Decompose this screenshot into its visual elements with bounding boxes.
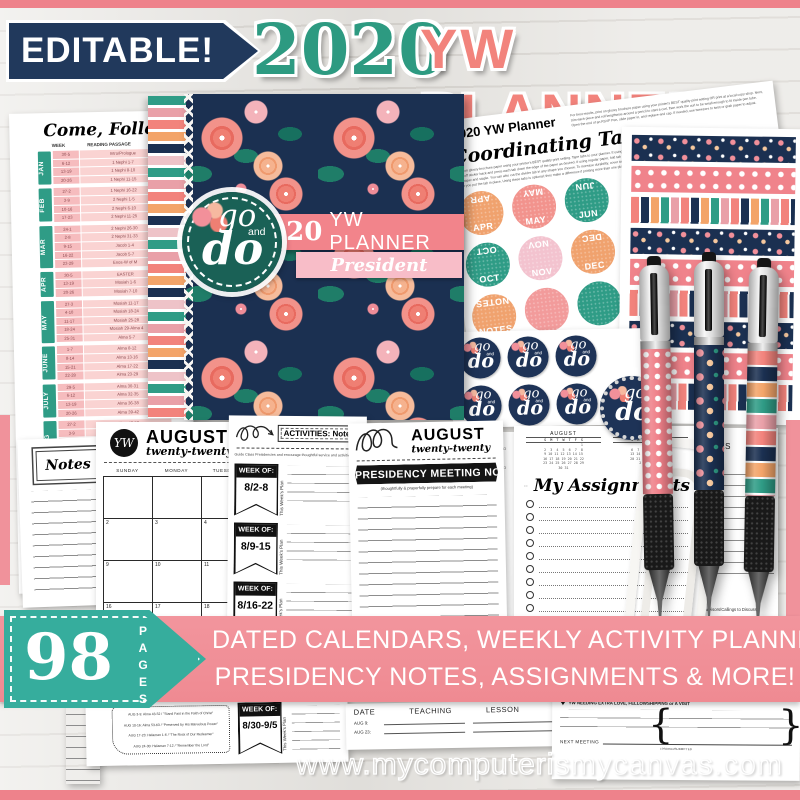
activities-header: ACTIVITIES: Notes: [235, 421, 361, 444]
teaching-row-date: AUG 9:: [354, 720, 376, 725]
teaching-header: TEACHING: [409, 706, 452, 716]
reading-week: 9-15: [55, 242, 81, 250]
presidency-notes-page: AUGUST twenty-twenty PRESIDENCY MEETING …: [348, 420, 507, 623]
cover-title: YW PLANNER: [329, 209, 464, 255]
calendar-cell: 2: [104, 519, 153, 561]
cover-subtitle-ribbon: President: [296, 252, 462, 278]
calendar-year-script: twenty-twenty: [146, 445, 233, 458]
week-flag-shape: WEEK OF: 8/30-9/5: [238, 702, 283, 755]
pen-tip: [644, 570, 675, 623]
right-brace: }: [778, 703, 800, 749]
go-and-do-sticker: goanddo: [508, 384, 550, 426]
presidency-banner: PRESIDENCY MEETING NOTES: [355, 463, 498, 485]
week-of-label: WEEK OF:: [235, 583, 276, 595]
go-and-do-lockup: goanddo: [459, 337, 501, 379]
sticker-do: do: [468, 349, 495, 373]
month-tab-circle: DECDEC: [568, 227, 617, 276]
dashed-divider: [357, 458, 496, 462]
pen-grip: [643, 494, 674, 571]
calendar-cell: 9: [104, 561, 153, 603]
month-tab-label: DEC: [584, 259, 606, 271]
reading-week: 30-5: [55, 271, 81, 279]
reading-week: 25-31: [57, 334, 83, 342]
month-tab-label: MAY: [41, 301, 55, 343]
teaching-header: LESSON: [486, 705, 520, 715]
banner-line-1: DATED CALENDARS, WEEKLY ACTIVITY PLANNER…: [212, 622, 798, 659]
teaching-table-headers: DATETEACHINGLESSON: [354, 704, 553, 716]
month-tab-label-mirrored: DEC: [581, 231, 603, 243]
editable-label: EDITABLE!: [9, 31, 214, 71]
pen-grip: [744, 496, 775, 573]
checkbox-circle-icon: [526, 565, 534, 573]
top-border: [0, 0, 800, 8]
presidency-header: AUGUST twenty-twenty: [354, 426, 498, 457]
pen-clip: [650, 273, 658, 335]
month-tab-circle: MAYMAY: [510, 182, 559, 231]
reading-week: 8-14: [57, 354, 83, 362]
reading-week: 29-5: [58, 383, 84, 391]
activities-page: ACTIVITIES: Notes Guide Class Presidenci…: [227, 415, 367, 622]
pen-upper-barrel: [694, 261, 724, 337]
week-flag-shape: WEEK OF:8/9-15: [234, 522, 278, 574]
reading-week: 20-26: [53, 176, 79, 184]
go-and-do-lockup: goanddo: [507, 336, 549, 378]
write-lines: [287, 525, 360, 562]
reading-week: 20-26: [58, 409, 84, 417]
arrow-doodle-icon: [524, 480, 528, 492]
pen-floral: [694, 252, 724, 618]
reading-assignment-line: AUG 10-16: Alma 53-63 / "Preserved by Hi…: [117, 722, 225, 728]
calendar-month: AUGUST: [146, 428, 233, 446]
reading-week: 10-16: [54, 205, 80, 213]
presidency-month: AUGUST: [411, 426, 490, 444]
activities-subtitle: Guide Class Presidencies and encourage t…: [235, 452, 361, 457]
month-tab-label: NOV: [531, 265, 553, 277]
pen-wrap-polka: [640, 349, 673, 495]
pen-polka: [639, 256, 675, 622]
presidency-subtitle: (thoughtfully & prayerfully prepare for …: [355, 484, 498, 492]
badge-do: do: [202, 222, 263, 275]
month-tab-label: JUN: [578, 207, 599, 219]
write-line: [472, 721, 553, 723]
sticker-do: do: [564, 347, 591, 371]
month-tab-label-mirrored: JUN: [575, 180, 596, 192]
checkbox-circle-icon: [526, 552, 534, 560]
pen-upper-barrel: [748, 267, 779, 344]
dashed-divider: [237, 447, 359, 449]
week-of-value: 8/9-15: [235, 540, 276, 552]
decor: [237, 426, 273, 441]
presidency-write-lines: [357, 495, 499, 630]
notes-label: Notes: [36, 449, 101, 481]
reading-week: 13-19: [58, 400, 84, 408]
washi-band-polka: [631, 166, 795, 194]
week-flag: WEEK OF: 8/30-9/5: [238, 702, 279, 751]
reading-week: 23-29: [55, 260, 81, 268]
month-tab-label-mirrored: MAY: [521, 186, 543, 198]
page-count: 98: [24, 620, 113, 695]
pages-label: PAGES: [136, 624, 150, 709]
decor: [524, 485, 527, 486]
reading-week: 3-9: [59, 429, 85, 437]
checkbox-circle-icon: [526, 539, 534, 547]
mini-calendar-week: 30 31: [526, 466, 601, 471]
reading-assignment-line: AUG 3-9: Alma 43-52 / "Stand Fast in the…: [117, 711, 225, 717]
activity-week-list: WEEK OF:8/2-8This Week's PlanWEEK OF:8/9…: [233, 463, 360, 634]
reading-week: 18-24: [56, 326, 82, 334]
month-tab-label: JUNE: [42, 346, 56, 380]
go-and-do-lockup: go and do: [182, 192, 282, 292]
week-column-header: WEEK: [52, 143, 66, 148]
bottom-border: [0, 790, 800, 800]
pen-wrap-floral: [694, 345, 724, 490]
editable-ribbon-fill: EDITABLE!: [9, 23, 258, 79]
yw-monogram-icon: YW: [110, 429, 138, 457]
month-tab-label: APR: [40, 272, 54, 297]
sticker-do: do: [516, 348, 543, 372]
pen-wrap-stripes: [745, 351, 778, 497]
teaching-row-date: AUG 23:: [354, 729, 376, 734]
product-image: EDITABLE! 2020 YW PLANNER Come, Follow M…: [0, 0, 800, 800]
banner-text: DATED CALENDARS, WEEKLY ACTIVITY PLANNER…: [212, 622, 798, 696]
reading-week: 17-23: [54, 214, 80, 222]
header-year: 2020: [252, 8, 447, 91]
coral-page-edge-left: [0, 415, 10, 585]
month-tab-circle: OCTOCT: [463, 240, 512, 289]
reading-week: 15-21: [57, 363, 83, 371]
decor: [356, 429, 397, 451]
calendar-title-block: AUGUST twenty-twenty: [146, 428, 233, 458]
reading-week: 22-28: [57, 372, 83, 380]
reading-week: 6-12: [58, 392, 84, 400]
left-brace: {: [648, 702, 674, 748]
reading-week: 27-3: [56, 300, 82, 308]
week-of-value: 8/30-9/5: [239, 719, 280, 731]
mini-calendar: AUGUSTS M T W T F S 12 3 4 5 6 7 89 10 1…: [526, 431, 601, 471]
go-and-do-sticker: goanddo: [507, 336, 549, 378]
month-tab-circle: JUNJUN: [562, 175, 611, 224]
pen-band: [694, 337, 724, 345]
month-tab-label: JULY: [43, 384, 57, 418]
editable-ribbon: EDITABLE!: [6, 20, 261, 82]
write-lines: [292, 705, 341, 752]
checkbox-circle-icon: [526, 500, 534, 508]
next-meeting-label: NEXT MEETING: [560, 739, 599, 744]
write-line: [473, 730, 554, 732]
week-flag-inner: WEEK OF:8/2-8: [236, 465, 277, 514]
reading-week: 3-9: [54, 196, 80, 204]
week-flag-inner: WEEK OF:8/9-15: [235, 524, 276, 573]
checkbox-circle-icon: [526, 591, 534, 599]
month-tab-label-mirrored: OCT: [475, 244, 497, 256]
month-tab-label: APR: [472, 220, 494, 232]
washi-band-floral: [632, 135, 796, 163]
reading-week: 24-1: [54, 225, 80, 233]
teaching-schedule-page: DATETEACHINGLESSON AUG 9:AUG 23:: [346, 700, 562, 750]
pen-clip: [705, 269, 712, 331]
sticker-do: do: [517, 396, 544, 420]
go-and-do-sticker: goanddo: [556, 383, 598, 425]
this-weeks-plan-label: This Week's Plan: [279, 464, 284, 516]
pen-grip: [694, 490, 724, 566]
week-flag-inner: WEEK OF: 8/30-9/5: [239, 703, 281, 753]
reading-week: 27-2: [58, 421, 84, 429]
calendar-cell: [104, 477, 153, 519]
teaching-table-rows: AUG 9:AUG 23:: [354, 717, 553, 734]
activity-week-group: WEEK OF:8/9-15This Week's Plan: [234, 522, 360, 575]
sticker-do: do: [469, 397, 496, 421]
week-of-label: WEEK OF:: [239, 703, 280, 716]
week-of-value: 8/16-22: [235, 599, 276, 611]
calendar-day-header: SUNDAY: [103, 465, 152, 476]
cover-title-banner: 2020 YW PLANNER: [250, 214, 464, 250]
teaching-row: AUG 9:: [354, 717, 553, 725]
this-weeks-plan-label: This Week's Plan: [279, 523, 284, 575]
teaching-row: AUG 23:: [354, 726, 553, 734]
write-line: [384, 732, 465, 734]
month-tab-label-mirrored: NOV: [528, 238, 550, 250]
reading-week: 27-2: [54, 188, 80, 196]
reading-assignment-box: AUG 3-9: Alma 43-52 / "Stand Fast in the…: [112, 705, 231, 755]
activity-week-group: WEEK OF:8/2-8This Week's Plan: [234, 463, 360, 516]
sticker-do: do: [565, 395, 592, 419]
month-tab-circle: [522, 285, 571, 334]
week-of-label: WEEK OF:: [236, 465, 277, 477]
write-line: [384, 723, 465, 725]
reading-week: 16-22: [55, 251, 81, 259]
calendar-cell: 10: [153, 561, 202, 603]
week-of-label: WEEK OF:: [235, 524, 276, 536]
pen-clip: [759, 275, 767, 337]
reading-week: 30-5: [53, 150, 79, 158]
week-of-value: 8/2-8: [236, 481, 277, 493]
go-and-do-sticker: goanddo: [459, 337, 501, 379]
reading-week: 2-8: [55, 234, 81, 242]
month-tab-circle: NOVNOV: [516, 233, 565, 282]
next-meeting-row: NEXT MEETING: [560, 739, 792, 746]
pen-upper-barrel: [639, 265, 670, 342]
month-tab-circle: [575, 278, 624, 327]
reading-assignment-line: AUG 24-30: Helaman 7-12 / "Remember the …: [117, 743, 225, 749]
this-weeks-plan-label: This Week's Plan: [282, 705, 288, 751]
go-and-do-lockup: goanddo: [556, 383, 598, 425]
write-lines: [560, 709, 792, 733]
passage-column-header: READING PASSAGE: [87, 141, 131, 147]
reading-week: 20-26: [56, 288, 82, 296]
swirl-doodle-icon: [235, 421, 274, 443]
reading-assignment-line: AUG 17-23: Helaman 1-6 / "The Rock of Ou…: [117, 732, 225, 738]
reading-week: 4-10: [56, 309, 82, 317]
watermark: www.mycomputerismycanvas.com: [296, 748, 782, 782]
calendar-cell: 3: [153, 519, 202, 561]
calendar-day-header: MONDAY: [152, 465, 201, 476]
checkbox-circle-icon: [526, 604, 534, 612]
month-tab-label: OCT: [479, 272, 501, 284]
month-tab-label: MAR: [39, 226, 53, 268]
presidency-year-script: twenty-twenty: [411, 442, 490, 455]
banner-line-2: PRESIDENCY NOTES, ASSIGNMENTS & MORE!: [212, 659, 798, 696]
month-tab-label: JAN: [38, 151, 52, 185]
reading-week: 11-17: [56, 317, 82, 325]
cover-subtitle: President: [331, 255, 428, 276]
checkbox-circle-icon: [526, 526, 534, 534]
month-tab-label-mirrored: NOTES: [475, 295, 509, 309]
reading-week: 1-7: [57, 346, 83, 354]
checkbox-circle-icon: [526, 513, 534, 521]
reading-week: 6-12: [53, 159, 79, 167]
go-and-do-badge: go and do: [182, 192, 282, 292]
presidency-title-block: AUGUST twenty-twenty: [411, 426, 490, 455]
checkbox-circle-icon: [526, 578, 534, 586]
week-flag-shape: WEEK OF:8/2-8: [234, 463, 278, 515]
calendar-cell: [153, 477, 202, 519]
reading-week: 13-19: [55, 280, 81, 288]
month-tab-label: MAY: [525, 214, 547, 226]
go-and-do-lockup: goanddo: [508, 384, 550, 426]
month-tab-label-mirrored: APR: [469, 192, 491, 204]
go-and-do-lockup: goanddo: [555, 335, 597, 377]
pen-tip: [694, 566, 724, 618]
washi-band-stripes: [631, 197, 795, 225]
write-line: [603, 743, 792, 745]
month-tab-label: FEB: [39, 188, 53, 222]
loop-doodle-icon: [354, 427, 407, 456]
teaching-header: DATE: [354, 707, 376, 716]
pen-striped: [743, 258, 779, 624]
reading-week: 13-19: [53, 168, 79, 176]
month-tab-circle: APRAPR: [457, 188, 506, 237]
go-and-do-sticker: goanddo: [555, 335, 597, 377]
